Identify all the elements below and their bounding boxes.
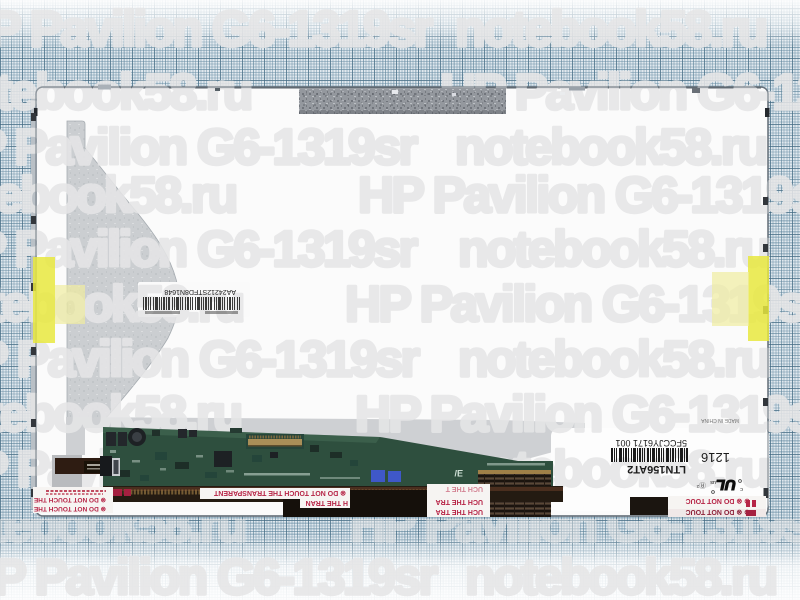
svg-text:HP Pavilion G6-1319sr: HP Pavilion G6-1319sr	[0, 549, 437, 600]
svg-text:1216: 1216	[701, 450, 730, 465]
svg-text:HP Pavilion G6-1319sr: HP Pavilion G6-1319sr	[358, 167, 800, 223]
svg-text:notebook58.ru: notebook58.ru	[458, 331, 769, 387]
svg-text:us: us	[710, 479, 716, 485]
svg-text:5FCCJY6171 001: 5FCCJY6171 001	[615, 438, 687, 448]
svg-text:notebook58.ru: notebook58.ru	[458, 221, 769, 277]
svg-text:HP Pavilion G6-1319sr: HP Pavilion G6-1319sr	[0, 331, 419, 387]
svg-text:⊗ ⊗ DO NOT TOUC: ⊗ ⊗ DO NOT TOUC	[686, 497, 751, 504]
svg-text:Ⓡ²: Ⓡ²	[696, 481, 706, 489]
svg-text:notebook58.ru: notebook58.ru	[0, 64, 251, 120]
svg-text:⊗ DO NOT TOUCH THE: ⊗ DO NOT TOUCH THE	[33, 505, 106, 512]
svg-text:notebook58.ru: notebook58.ru	[455, 1, 766, 57]
svg-text:H THE TRAN: H THE TRAN	[306, 499, 348, 506]
svg-text:UL: UL	[716, 476, 736, 493]
svg-text:c: c	[740, 486, 743, 492]
svg-text:HP Pavilion G6-1319sr: HP Pavilion G6-1319sr	[0, 221, 417, 277]
svg-text:HP Pavilion G6-1319sr: HP Pavilion G6-1319sr	[0, 1, 432, 57]
svg-text:LTN156AT2: LTN156AT2	[627, 463, 686, 475]
svg-text:UCH THE TRA: UCH THE TRA	[436, 498, 483, 505]
svg-text:notebook58.ru: notebook58.ru	[465, 549, 776, 600]
svg-text:Ǝ/: Ǝ/	[454, 468, 463, 478]
svg-text:⊗ ⊗ DO NOT TOUC: ⊗ ⊗ DO NOT TOUC	[686, 508, 751, 515]
svg-text:⊗ DO NOT TOUCH THE TRANSPARENT: ⊗ DO NOT TOUCH THE TRANSPARENT	[213, 489, 346, 496]
svg-text:HP Pavilion G6-1319sr: HP Pavilion G6-1319sr	[355, 386, 800, 442]
svg-text:MADE IN CHINA: MADE IN CHINA	[701, 417, 739, 423]
svg-text:⊗ DO NOT TOUCH THE: ⊗ DO NOT TOUCH THE	[33, 496, 106, 503]
svg-text:AA24212STFD8N1648: AA24212STFD8N1648	[164, 288, 236, 295]
svg-text:UCH THE T: UCH THE T	[445, 485, 483, 492]
svg-text:UCH THE TRA: UCH THE TRA	[436, 508, 483, 515]
